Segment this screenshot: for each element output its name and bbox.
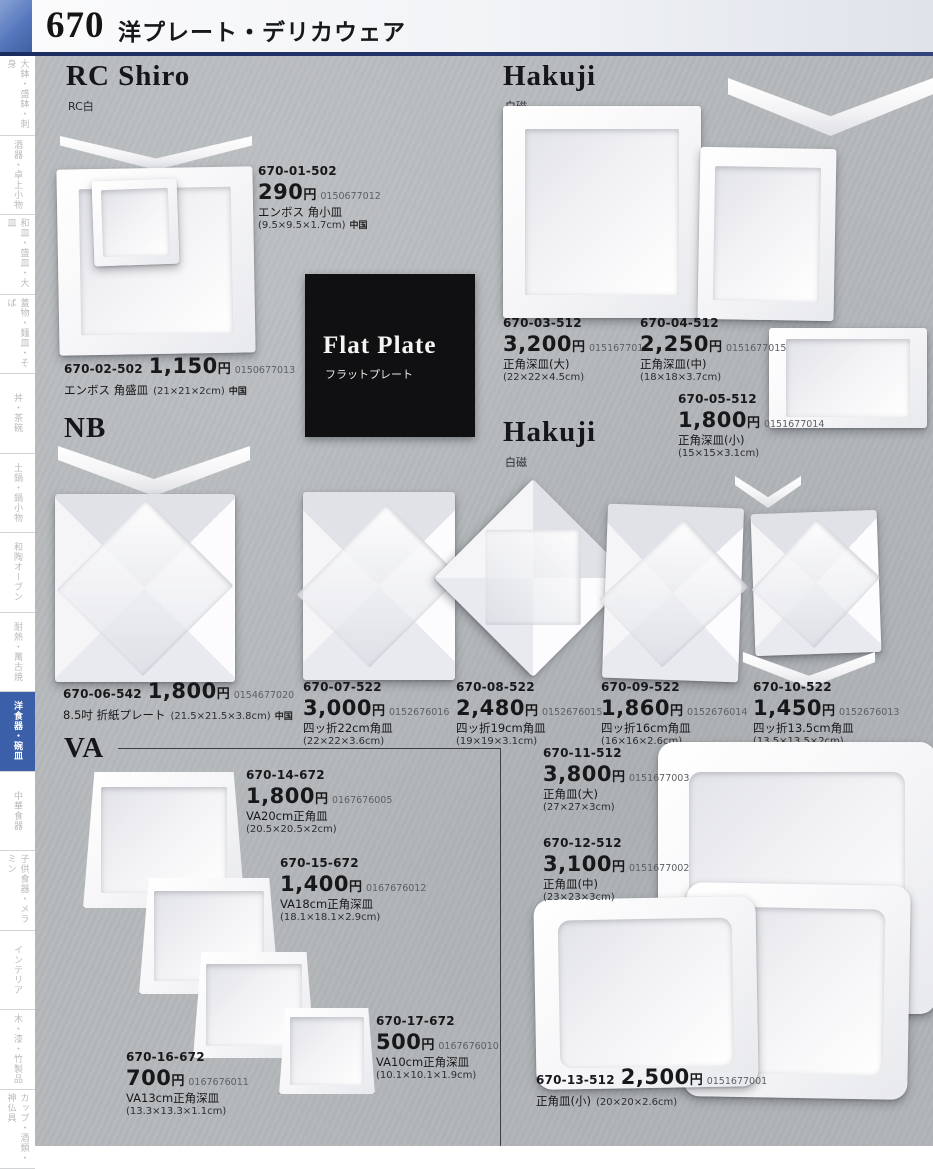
- product-size: (22×22×3.6cm): [303, 736, 449, 749]
- sidebar-tab-yoshokki-active[interactable]: 洋食器・碗皿: [0, 692, 35, 772]
- product-name: VA18cm正角深皿: [280, 897, 426, 911]
- plate-photo-rc-small: [92, 179, 180, 267]
- product-670-04-512: 670-04-512 2,250円0151677015 正角深皿(中) (18×…: [640, 316, 786, 384]
- product-size: (23×23×3cm): [543, 892, 689, 905]
- product-size: (20×20×2.6cm): [596, 1097, 677, 1108]
- product-name: 四ッ折19cm角皿: [456, 721, 602, 735]
- product-code: 670-17-672: [376, 1014, 499, 1029]
- product-code: 670-05-512: [678, 392, 824, 407]
- product-origin: 中国: [229, 387, 247, 397]
- product-ref: 0152676016: [389, 707, 449, 718]
- product-price: 1,450: [753, 696, 822, 720]
- page-title: 洋プレート・デリカウェア: [118, 13, 406, 47]
- product-size: (22×22×4.5cm): [503, 372, 649, 385]
- currency-label: 円: [670, 704, 683, 719]
- plate-photo-seikaku-small: [533, 896, 758, 1090]
- product-code: 670-08-522: [456, 680, 602, 695]
- plate-photo-hakuji-large: [503, 106, 701, 318]
- currency-label: 円: [349, 880, 362, 895]
- product-670-01-502: 670-01-502 290円0150677012 エンボス 角小皿 (9.5×…: [258, 164, 381, 232]
- product-670-09-522: 670-09-522 1,860円0152676014 四ッ折16cm角皿 (1…: [601, 680, 747, 748]
- plate-photo-hakuji-medium: [698, 147, 837, 321]
- plate-photo-yotsuori-22: [303, 492, 455, 680]
- product-670-16-672: 670-16-672 700円0167676011 VA13cm正角深皿 (13…: [126, 1050, 249, 1118]
- currency-label: 円: [218, 362, 231, 377]
- product-ref: 0150677012: [320, 191, 380, 202]
- sidebar-tab-shuki[interactable]: 酒器・卓上小物: [0, 136, 35, 216]
- product-size: (27×27×3cm): [543, 802, 689, 815]
- product-670-14-672: 670-14-672 1,800円0167676005 VA20cm正角皿 (2…: [246, 768, 392, 836]
- product-ref: 0167676012: [366, 883, 426, 894]
- product-size: (18.1×18.1×2.9cm): [280, 912, 426, 925]
- product-code: 670-01-502: [258, 164, 381, 179]
- product-code: 670-10-522: [753, 680, 899, 695]
- product-ref: 0154677020: [234, 690, 294, 701]
- product-670-02-502: 670-02-5021,150円0150677013 エンボス 角盛皿(21×2…: [64, 353, 295, 399]
- product-size: (13.3×13.3×1.1cm): [126, 1106, 249, 1119]
- product-ref: 0150677013: [235, 365, 295, 376]
- product-670-13-512: 670-13-5122,500円0151677001 正角皿(小)(20×20×…: [536, 1064, 767, 1110]
- product-price: 3,000: [303, 696, 372, 720]
- product-ref: 0151677003: [629, 773, 689, 784]
- product-code: 670-13-512: [536, 1073, 615, 1087]
- product-ref: 0167676011: [188, 1077, 248, 1088]
- product-size: (20.5×20.5×2cm): [246, 824, 392, 837]
- product-code: 670-12-512: [543, 836, 689, 851]
- corner-accent-square: [0, 0, 32, 52]
- product-670-07-522: 670-07-522 3,000円0152676016 四ッ折22cm角皿 (2…: [303, 680, 449, 748]
- product-name: 正角皿(中): [543, 877, 689, 891]
- product-ref: 0152676014: [687, 707, 747, 718]
- currency-label: 円: [690, 1073, 703, 1088]
- currency-label: 円: [572, 340, 585, 355]
- sidebar-tab-ohachi[interactable]: 大鉢・盛鉢・刺身: [0, 56, 35, 136]
- product-name: 正角深皿(大): [503, 357, 649, 371]
- sidebar-tab-mokushitsu[interactable]: 木・漆・竹製品: [0, 1010, 35, 1090]
- product-size: (18×18×3.7cm): [640, 372, 786, 385]
- product-ref: 0167676005: [332, 795, 392, 806]
- product-price: 700: [126, 1066, 171, 1090]
- product-size: (9.5×9.5×1.7cm): [258, 220, 346, 231]
- plate-photo-yotsuori-13: [751, 510, 882, 656]
- product-size: (10.1×10.1×1.9cm): [376, 1070, 499, 1083]
- product-name: 8.5吋 折紙プレート: [63, 708, 165, 722]
- section-subtitle-hakuji-mid: 白磁: [505, 454, 527, 470]
- plate-photo-nb-bowl: [55, 494, 235, 682]
- currency-label: 円: [421, 1038, 434, 1053]
- currency-label: 円: [525, 704, 538, 719]
- product-price: 2,500: [621, 1065, 690, 1089]
- product-670-15-672: 670-15-672 1,400円0167676012 VA18cm正角深皿 (…: [280, 856, 426, 924]
- currency-label: 円: [315, 792, 328, 807]
- sidebar-tab-chuka[interactable]: 中華食器: [0, 772, 35, 852]
- product-name: 正角皿(大): [543, 787, 689, 801]
- catalog-board: RC Shiro RC白 670-01-502 290円0150677012 エ…: [35, 56, 933, 1146]
- product-ref: 0151677001: [707, 1076, 767, 1087]
- section-title-nb: NB: [64, 414, 106, 443]
- product-code: 670-16-672: [126, 1050, 249, 1065]
- product-ref: 0151677015: [726, 343, 786, 354]
- page-header: 670 洋プレート・デリカウェア: [0, 0, 933, 52]
- product-price: 3,100: [543, 852, 612, 876]
- product-code: 670-09-522: [601, 680, 747, 695]
- product-name: エンボス 角小皿: [258, 205, 381, 219]
- product-price: 1,800: [678, 408, 747, 432]
- section-subtitle-rc-shiro: RC白: [68, 98, 94, 114]
- catalog-page: 670 洋プレート・デリカウェア 大鉢・盛鉢・刺身 酒器・卓上小物 和皿・盛皿・…: [0, 0, 933, 1169]
- currency-label: 円: [612, 860, 625, 875]
- section-title-va: VA: [64, 734, 104, 763]
- product-size: (21.5×21.5×3.8cm): [170, 711, 270, 722]
- product-code: 670-15-672: [280, 856, 426, 871]
- page-number: 670: [46, 4, 105, 47]
- product-name: VA10cm正角深皿: [376, 1055, 499, 1069]
- currency-label: 円: [372, 704, 385, 719]
- product-price: 3,800: [543, 762, 612, 786]
- currency-label: 円: [709, 340, 722, 355]
- product-670-11-512: 670-11-512 3,800円0151677003 正角皿(大) (27×2…: [543, 746, 689, 814]
- currency-label: 円: [217, 687, 230, 702]
- product-price: 290: [258, 180, 303, 204]
- product-name: 四ッ折16cm角皿: [601, 721, 747, 735]
- flat-plate-banner: Flat Plate フラットプレート: [305, 274, 475, 437]
- plate-photo-yotsuori-13-side-top: [735, 476, 801, 508]
- product-670-08-522: 670-08-522 2,480円0152676015 四ッ折19cm角皿 (1…: [456, 680, 602, 748]
- product-code: 670-07-522: [303, 680, 449, 695]
- product-670-12-512: 670-12-512 3,100円0151677002 正角皿(中) (23×2…: [543, 836, 689, 904]
- product-size: (15×15×3.1cm): [678, 448, 824, 461]
- plate-photo-yotsuori-16: [602, 504, 744, 683]
- sidebar-tab-donburi[interactable]: 丼・茶碗: [0, 374, 35, 454]
- product-code: 670-04-512: [640, 316, 786, 331]
- product-price: 2,250: [640, 332, 709, 356]
- product-name: エンボス 角盛皿: [64, 383, 148, 397]
- flat-plate-title: Flat Plate: [323, 332, 436, 360]
- product-ref: 0151677014: [764, 419, 824, 430]
- product-name: VA13cm正角深皿: [126, 1091, 249, 1105]
- va-divider-vertical: [500, 748, 501, 1146]
- product-name: VA20cm正角皿: [246, 809, 392, 823]
- product-ref: 0152676013: [839, 707, 899, 718]
- product-code: 670-03-512: [503, 316, 649, 331]
- product-670-10-522: 670-10-522 1,450円0152676013 四ッ折13.5cm角皿 …: [753, 680, 899, 748]
- sidebar-tab-futamono[interactable]: 蓋物・麺皿・そば: [0, 295, 35, 375]
- sidebar-tab-kodomo[interactable]: 子供食器・メラミン: [0, 851, 35, 931]
- currency-label: 円: [747, 416, 760, 431]
- plate-photo-nb-side: [58, 446, 250, 496]
- sidebar-tab-interior[interactable]: インテリア: [0, 931, 35, 1011]
- product-price: 1,400: [280, 872, 349, 896]
- currency-label: 円: [822, 704, 835, 719]
- product-code: 670-06-542: [63, 687, 142, 701]
- category-sidebar: 大鉢・盛鉢・刺身 酒器・卓上小物 和皿・盛皿・大皿 蓋物・麺皿・そば 丼・茶碗 …: [0, 56, 35, 1169]
- product-name: 正角皿(小): [536, 1094, 591, 1108]
- section-title-hakuji-top: Hakuji: [503, 62, 596, 91]
- product-price: 1,800: [148, 679, 217, 703]
- sidebar-tab-tainetsu[interactable]: 耐熱・萬古焼: [0, 613, 35, 693]
- sidebar-tab-oven[interactable]: 和陶オーブン: [0, 533, 35, 613]
- currency-label: 円: [171, 1074, 184, 1089]
- sidebar-tab-donabe[interactable]: 土鍋・鍋小物: [0, 454, 35, 534]
- section-title-hakuji-mid: Hakuji: [503, 418, 596, 447]
- product-price: 500: [376, 1030, 421, 1054]
- product-670-06-542: 670-06-5421,800円0154677020 8.5吋 折紙プレート(2…: [63, 678, 294, 724]
- product-670-03-512: 670-03-512 3,200円0151677016 正角深皿(大) (22×…: [503, 316, 649, 384]
- product-price: 1,800: [246, 784, 315, 808]
- product-name: 四ッ折22cm角皿: [303, 721, 449, 735]
- product-size: (21×21×2cm): [153, 386, 225, 397]
- product-code: 670-11-512: [543, 746, 689, 761]
- product-code: 670-14-672: [246, 768, 392, 783]
- product-code: 670-02-502: [64, 362, 143, 376]
- product-price: 1,860: [601, 696, 670, 720]
- product-price: 2,480: [456, 696, 525, 720]
- product-670-17-672: 670-17-672 500円0167676010 VA10cm正角深皿 (10…: [376, 1014, 499, 1082]
- plate-photo-va-10: [279, 1008, 375, 1094]
- product-ref: 0152676015: [542, 707, 602, 718]
- plate-photo-hakuji-side: [728, 78, 933, 136]
- product-name: 四ッ折13.5cm角皿: [753, 721, 899, 735]
- currency-label: 円: [303, 188, 316, 203]
- section-title-rc-shiro: RC Shiro: [66, 62, 190, 91]
- flat-plate-subtitle: フラットプレート: [325, 366, 413, 382]
- plate-photo-rc-side: [60, 136, 252, 170]
- product-origin: 中国: [275, 712, 293, 722]
- product-name: 正角深皿(小): [678, 433, 824, 447]
- va-divider-horizontal: [118, 748, 501, 749]
- product-ref: 0151677002: [629, 863, 689, 874]
- product-ref: 0167676010: [438, 1041, 498, 1052]
- product-name: 正角深皿(中): [640, 357, 786, 371]
- product-price: 1,150: [149, 354, 218, 378]
- product-origin: 中国: [350, 221, 368, 231]
- currency-label: 円: [612, 770, 625, 785]
- product-price: 3,200: [503, 332, 572, 356]
- product-670-05-512: 670-05-512 1,800円0151677014 正角深皿(小) (15×…: [678, 392, 824, 460]
- sidebar-tab-wazara[interactable]: 和皿・盛皿・大皿: [0, 215, 35, 295]
- sidebar-tab-cup[interactable]: カップ・酒類・神仏具: [0, 1090, 35, 1169]
